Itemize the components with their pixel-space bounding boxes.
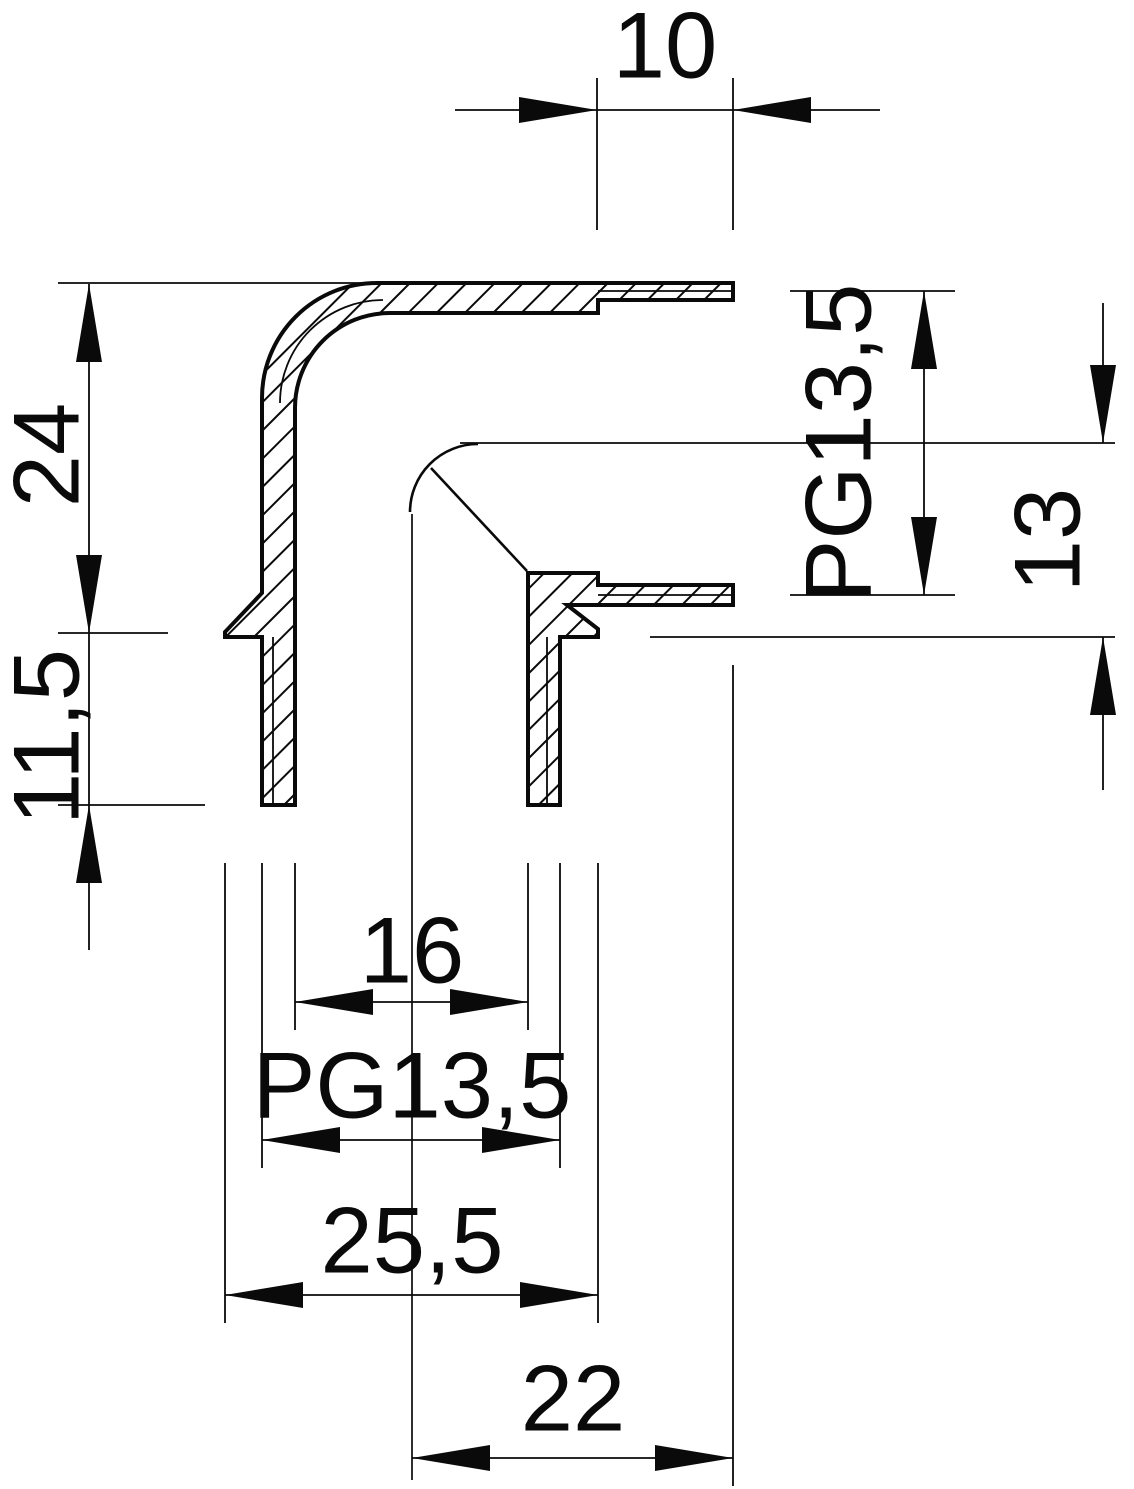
dim-text-center-to-mouth-22: 22 [521,1346,626,1451]
dim-text-bore-16: 16 [360,898,465,1003]
dim-text-offset-13: 13 [995,488,1100,593]
dim-text-spigot-length-11-5: 11,5 [0,649,99,825]
technical-drawing: 102411,5PG13,51316PG13,525,522 [0,0,1134,1489]
dim-text-socket-depth-10: 10 [613,0,718,98]
dim-text-socket-thread-pg13-5: PG13,5 [786,284,891,603]
background [0,0,1134,1489]
dim-text-spigot-thread-pg13-5: PG13,5 [253,1033,572,1138]
drawing-canvas: 102411,5PG13,51316PG13,525,522 [0,0,1134,1489]
dim-text-flange-width-25-5: 25,5 [321,1188,504,1293]
dim-text-upper-length-24: 24 [0,403,99,508]
